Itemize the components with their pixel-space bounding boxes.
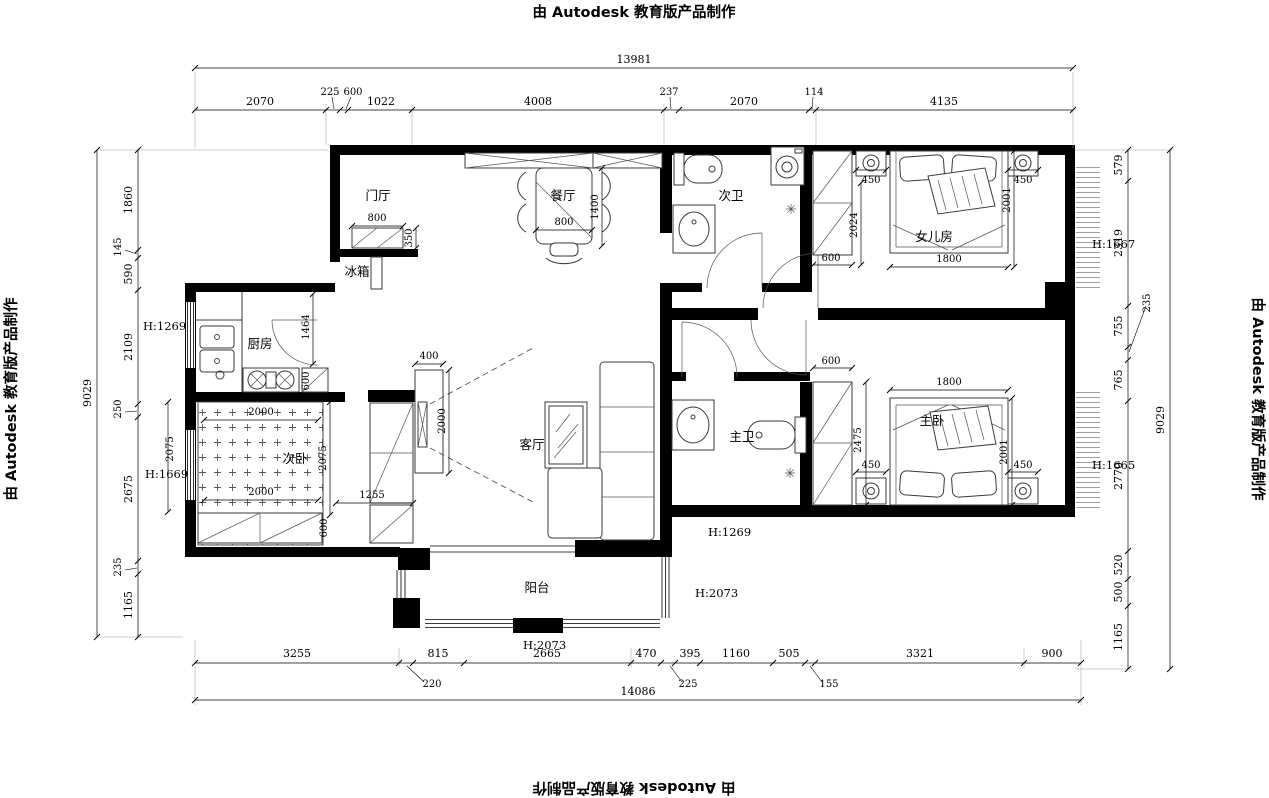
dim-bed2-depth: 2075 xyxy=(318,445,329,470)
bath1-toilet xyxy=(748,417,806,453)
dim-m-depth: 2475 xyxy=(853,427,864,452)
dimension-chain-top: 13981 2070 225 600 1022 4008 237 2070 11… xyxy=(195,53,1073,110)
height-kitchen-window: H:1269 xyxy=(143,319,186,333)
dim-bottom-2: 815 xyxy=(428,647,449,660)
watermark-right: 由 Autodesk 教育版产品制作 xyxy=(1249,297,1267,501)
dim-bed2-open: 1255 xyxy=(359,490,384,501)
dimension-chain-left: 9029 1860 145 590 2109 250 2675 235 1165 xyxy=(81,150,138,637)
height-master-window: H:1665 xyxy=(1092,458,1135,472)
dim-entry-width: 800 xyxy=(367,213,386,224)
bed2-cabinet-row xyxy=(198,513,322,543)
room-label-bath1: 主卫 xyxy=(729,429,754,444)
height-bed2-window: H:1669 xyxy=(145,467,188,481)
kitchen-stove xyxy=(243,368,299,392)
dim-m-wardrobe: 600 xyxy=(821,356,840,367)
dim-girl-ns-l: 450 xyxy=(861,175,880,186)
dim-left-6: 235 xyxy=(113,557,124,576)
dim-m-ns-r: 450 xyxy=(1013,460,1032,471)
dim-top-6: 2070 xyxy=(730,95,758,108)
dimension-chain-bottom: 3255 220 815 2665 470 225 395 1160 505 1… xyxy=(195,647,1081,700)
dim-top-total: 13981 xyxy=(617,53,652,66)
drain-icon-2 xyxy=(785,468,795,478)
watermark-bottom: 由 Autodesk 教育版产品制作 xyxy=(532,779,736,797)
room-label-balcony: 阳台 xyxy=(524,580,549,595)
dim-right-4: 765 xyxy=(1112,370,1125,391)
dim-girl-len: 2001 xyxy=(1002,187,1013,212)
dim-m-bed: 1800 xyxy=(936,377,961,388)
coffee-table xyxy=(545,402,587,468)
dim-right-0: 579 xyxy=(1112,155,1125,176)
dim-girl-depth: 2024 xyxy=(849,212,860,237)
room-label-living: 客厅 xyxy=(519,437,544,452)
watermark-left: 由 Autodesk 教育版产品制作 xyxy=(2,297,20,501)
height-corridor: H:1269 xyxy=(708,525,751,539)
master-wardrobe xyxy=(813,382,852,505)
master-nightstand-left xyxy=(856,478,886,504)
dim-entry-depth: 350 xyxy=(404,228,415,247)
bath2-toilet xyxy=(674,153,722,185)
dim-bed2-cab: 600 xyxy=(319,518,330,537)
dim-bottom-8: 505 xyxy=(779,647,800,660)
shoe-cabinet xyxy=(352,228,403,248)
tv-cabinet xyxy=(415,348,533,502)
dim-left-total: 9029 xyxy=(81,379,94,407)
left-window-1 xyxy=(186,302,195,368)
room-label-bed2: 次卧 xyxy=(282,451,307,466)
balcony-window-right xyxy=(662,557,669,618)
dim-left-2: 590 xyxy=(122,264,135,285)
room-label-bath2: 次卫 xyxy=(718,188,743,203)
dim-bed2-l: 2000 xyxy=(248,487,273,498)
master-nightstand-right xyxy=(1008,478,1038,504)
dim-left-5: 2675 xyxy=(122,475,135,503)
dim-bottom-1: 220 xyxy=(422,679,441,690)
dim-bed2-w: 2000 xyxy=(248,407,273,418)
dim-left-0: 1860 xyxy=(122,186,135,214)
drain-icon-1 xyxy=(786,204,796,214)
dim-bottom-10: 3321 xyxy=(906,647,934,660)
dim-bottom-4: 470 xyxy=(636,647,657,660)
dim-tv-w: 400 xyxy=(419,351,438,362)
master-door xyxy=(751,320,806,375)
dim-dining-l: 1400 xyxy=(590,194,601,219)
dim-tv-l: 2000 xyxy=(437,408,448,433)
dim-bed2-room: 2075 xyxy=(165,436,176,461)
furniture xyxy=(196,147,1038,545)
dim-bottom-6: 395 xyxy=(680,647,701,660)
right-sill-1 xyxy=(1076,163,1100,289)
dim-top-0: 2070 xyxy=(246,95,274,108)
floorplan-page: 由 Autodesk 教育版产品制作 由 Autodesk 教育版产品制作 由 … xyxy=(0,0,1269,798)
room-label-girl-room: 女儿房 xyxy=(915,229,953,244)
room-label-entry: 门厅 xyxy=(365,188,390,203)
room-label-master: 主卧 xyxy=(919,413,944,428)
left-window-2 xyxy=(186,430,195,500)
bath1-sink xyxy=(672,400,714,450)
girl-wardrobe xyxy=(813,151,852,255)
dim-bottom-9: 155 xyxy=(819,679,838,690)
dim-girl-ns-r: 450 xyxy=(1013,175,1032,186)
right-sill-2 xyxy=(1076,390,1100,512)
dim-top-5: 237 xyxy=(659,87,678,98)
dimension-chain-right: 579 2319 755 235 765 2770 520 500 1165 9… xyxy=(1112,150,1170,669)
dim-top-3: 1022 xyxy=(367,95,395,108)
dim-left-1: 145 xyxy=(113,237,124,256)
watermark-top: 由 Autodesk 教育版产品制作 xyxy=(532,3,736,21)
balcony-window-left xyxy=(397,570,405,598)
bed2-wardrobe xyxy=(370,403,413,543)
dim-right-3: 235 xyxy=(1142,293,1153,312)
dim-top-4: 4008 xyxy=(524,95,552,108)
dim-m-len: 2001 xyxy=(999,439,1010,464)
dim-top-2: 600 xyxy=(343,87,362,98)
height-balcony-window: H:2073 xyxy=(523,638,566,652)
fridge xyxy=(371,257,382,289)
room-label-kitchen: 厨房 xyxy=(247,336,272,351)
dim-girl-wardrobe: 600 xyxy=(821,253,840,264)
dim-girl-bed: 1800 xyxy=(936,254,961,265)
dim-bottom-11: 900 xyxy=(1042,647,1063,660)
dim-right-7: 500 xyxy=(1112,582,1125,603)
room-label-dining: 餐厅 xyxy=(550,188,575,203)
kitchen-counter xyxy=(196,292,242,392)
dim-top-1: 225 xyxy=(320,87,339,98)
dim-left-4: 250 xyxy=(113,399,124,418)
dim-left-3: 2109 xyxy=(122,333,135,361)
washing-machine xyxy=(771,147,804,185)
dim-top-8: 4135 xyxy=(930,95,958,108)
dim-bottom-7: 1160 xyxy=(722,647,750,660)
dim-kitchen-door: 1464 xyxy=(301,314,312,339)
bath1-door xyxy=(682,322,737,377)
floorplan-drawing: 由 Autodesk 教育版产品制作 由 Autodesk 教育版产品制作 由 … xyxy=(0,0,1269,798)
balcony-sliding-door xyxy=(430,546,575,552)
girl-nightstand-right xyxy=(1008,151,1038,176)
master-bed xyxy=(890,398,1008,505)
dim-left-7: 1165 xyxy=(122,591,135,619)
height-girl-window: H:1667 xyxy=(1092,237,1135,251)
dim-right-2: 755 xyxy=(1112,316,1125,337)
height-balcony-door: H:2073 xyxy=(695,586,738,600)
dim-top-7: 114 xyxy=(804,87,823,98)
dim-right-total: 9029 xyxy=(1154,406,1167,434)
dim-right-6: 520 xyxy=(1112,555,1125,576)
girl-nightstand-left xyxy=(856,151,886,176)
room-label-fridge: 冰箱 xyxy=(344,264,369,279)
dim-bottom-0: 3255 xyxy=(283,647,311,660)
dim-right-8: 1165 xyxy=(1112,623,1125,651)
dim-kitchen-cab: 600 xyxy=(301,371,312,390)
dining-cabinets xyxy=(465,153,662,168)
dim-bottom-total: 14086 xyxy=(621,685,656,698)
dim-dining-w: 800 xyxy=(554,217,573,228)
dim-m-ns-l: 450 xyxy=(861,460,880,471)
bath2-sink xyxy=(673,205,715,253)
